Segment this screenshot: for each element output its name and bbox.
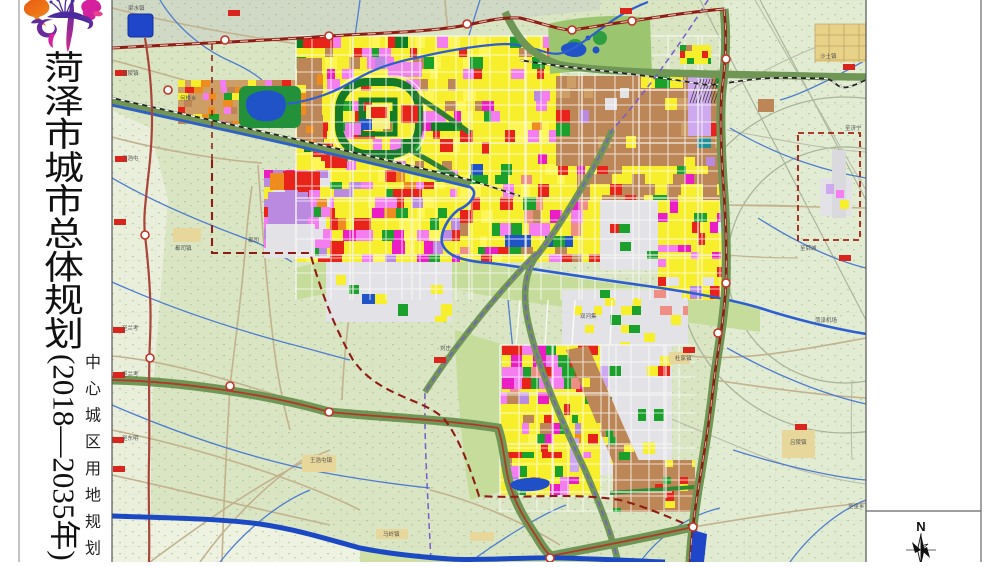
svg-text:沙土镇: 沙土镇 (820, 52, 837, 60)
svg-text:规: 规 (85, 513, 101, 531)
svg-text:市: 市 (44, 184, 84, 221)
svg-text:地: 地 (85, 486, 101, 504)
svg-text:梁水镇: 梁水镇 (128, 4, 145, 12)
svg-text:(2018—2035年): (2018—2035年) (47, 354, 82, 561)
svg-text:至兰考: 至兰考 (122, 324, 139, 332)
svg-text:总: 总 (44, 217, 84, 254)
svg-text:杜家镇: 杜家镇 (675, 354, 692, 362)
svg-text:用: 用 (85, 461, 101, 478)
svg-text:马岭镇: 马岭镇 (383, 530, 400, 538)
svg-text:至济宁: 至济宁 (845, 124, 862, 132)
svg-text:中: 中 (85, 353, 101, 371)
svg-text:划: 划 (85, 540, 101, 558)
svg-text:何楼乡: 何楼乡 (180, 94, 197, 102)
svg-text:菏泽机场: 菏泽机场 (815, 316, 838, 324)
svg-text:划: 划 (44, 316, 84, 353)
svg-text:王浩屯镇: 王浩屯镇 (310, 456, 333, 464)
svg-text:区: 区 (85, 434, 101, 451)
svg-text:至兰考: 至兰考 (122, 370, 139, 378)
svg-text:至郓城: 至郓城 (800, 244, 817, 252)
svg-text:心: 心 (85, 380, 101, 398)
svg-text:至金乡: 至金乡 (848, 502, 865, 510)
svg-text:规: 规 (44, 283, 84, 320)
svg-text:吕陵镇: 吕陵镇 (790, 438, 807, 446)
svg-text:体: 体 (44, 250, 84, 287)
svg-text:至东明: 至东明 (122, 434, 139, 442)
svg-text:城: 城 (85, 407, 101, 425)
svg-text:都司: 都司 (248, 237, 259, 244)
svg-text:菏: 菏 (44, 51, 84, 88)
svg-text:吕陵镇: 吕陵镇 (122, 69, 139, 77)
svg-text:王浩屯: 王浩屯 (122, 154, 139, 162)
svg-text:市: 市 (44, 117, 84, 154)
svg-text:刘庄: 刘庄 (440, 344, 452, 352)
svg-text:双河集: 双河集 (580, 312, 597, 320)
svg-text:泽: 泽 (44, 84, 84, 121)
svg-text:都司镇: 都司镇 (175, 244, 192, 252)
svg-text:N: N (916, 519, 925, 534)
svg-text:城: 城 (44, 150, 84, 187)
